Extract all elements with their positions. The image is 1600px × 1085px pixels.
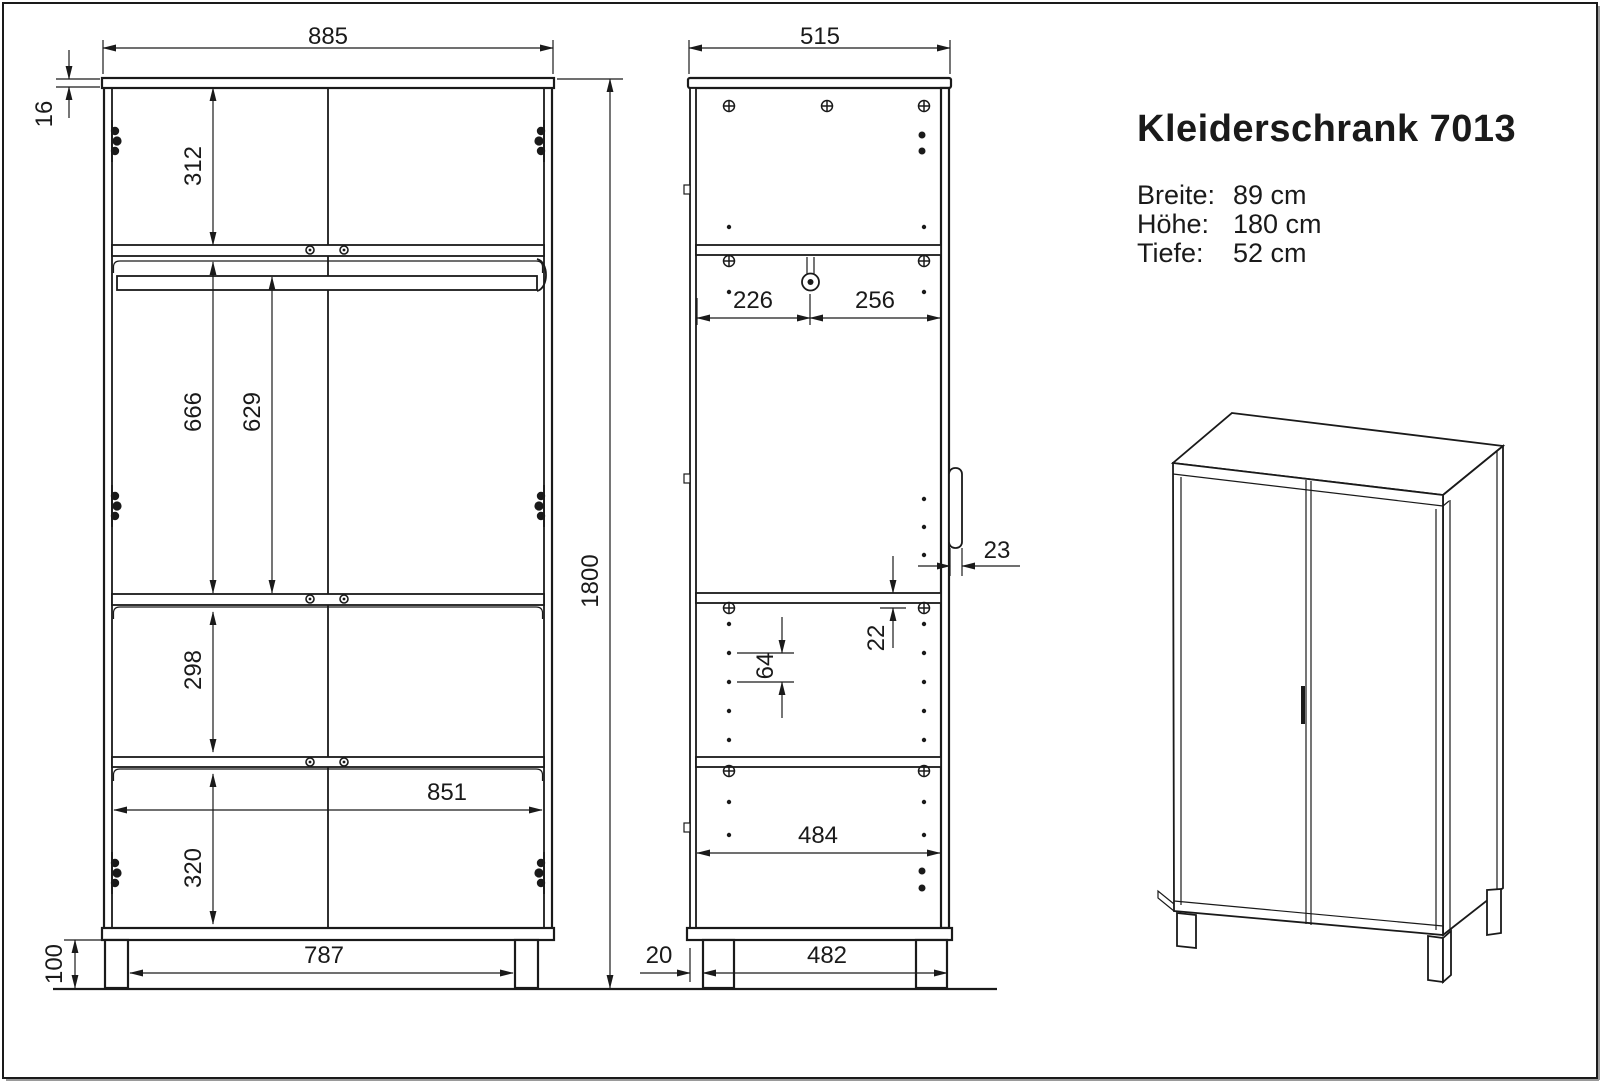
dim-label-256: 256 bbox=[855, 287, 895, 314]
spec-row-depth: Tiefe: 52 cm bbox=[1137, 239, 1299, 268]
spec-row-height: Höhe: 180 cm bbox=[1137, 210, 1299, 239]
dim-label-666: 666 bbox=[180, 392, 207, 432]
spec-label: Höhe: bbox=[1137, 210, 1233, 239]
dim-label-312: 312 bbox=[180, 146, 207, 186]
dim-label-1800: 1800 bbox=[577, 554, 604, 607]
dim-label-484: 484 bbox=[798, 822, 838, 849]
dim-label-851: 851 bbox=[427, 779, 467, 806]
dim-label-22: 22 bbox=[863, 625, 890, 652]
spec-value: 180 cm bbox=[1233, 210, 1322, 239]
drawing-title: Kleiderschrank 7013 bbox=[1137, 108, 1557, 151]
dim-label-320: 320 bbox=[180, 848, 207, 888]
dim-label-515: 515 bbox=[800, 23, 840, 50]
dim-label-885: 885 bbox=[308, 23, 348, 50]
dim-label-16: 16 bbox=[31, 101, 58, 128]
door-handle bbox=[949, 468, 962, 548]
dim-label-629: 629 bbox=[239, 392, 266, 432]
isometric-view bbox=[1158, 413, 1503, 982]
spec-value: 52 cm bbox=[1233, 239, 1307, 268]
technical-drawing: 885 16 312 666 629 298 851 bbox=[0, 0, 1600, 1085]
spec-list: Breite: 89 cm Höhe: 180 cm Tiefe: 52 cm bbox=[1137, 181, 1557, 268]
dim-label-100: 100 bbox=[41, 944, 68, 984]
spec-label: Breite: bbox=[1137, 181, 1233, 210]
dim-label-482: 482 bbox=[807, 942, 847, 969]
info-panel: Kleiderschrank 7013 Breite: 89 cm Höhe: … bbox=[1137, 108, 1557, 268]
dim-label-226: 226 bbox=[733, 287, 773, 314]
dim-label-64: 64 bbox=[752, 653, 779, 680]
dim-label-23: 23 bbox=[984, 537, 1011, 564]
spec-row-width: Breite: 89 cm bbox=[1137, 181, 1299, 210]
spec-label: Tiefe: bbox=[1137, 239, 1233, 268]
dim-label-20: 20 bbox=[646, 942, 673, 969]
dim-label-298: 298 bbox=[180, 650, 207, 690]
spec-value: 89 cm bbox=[1233, 181, 1307, 210]
dim-label-787: 787 bbox=[304, 942, 344, 969]
